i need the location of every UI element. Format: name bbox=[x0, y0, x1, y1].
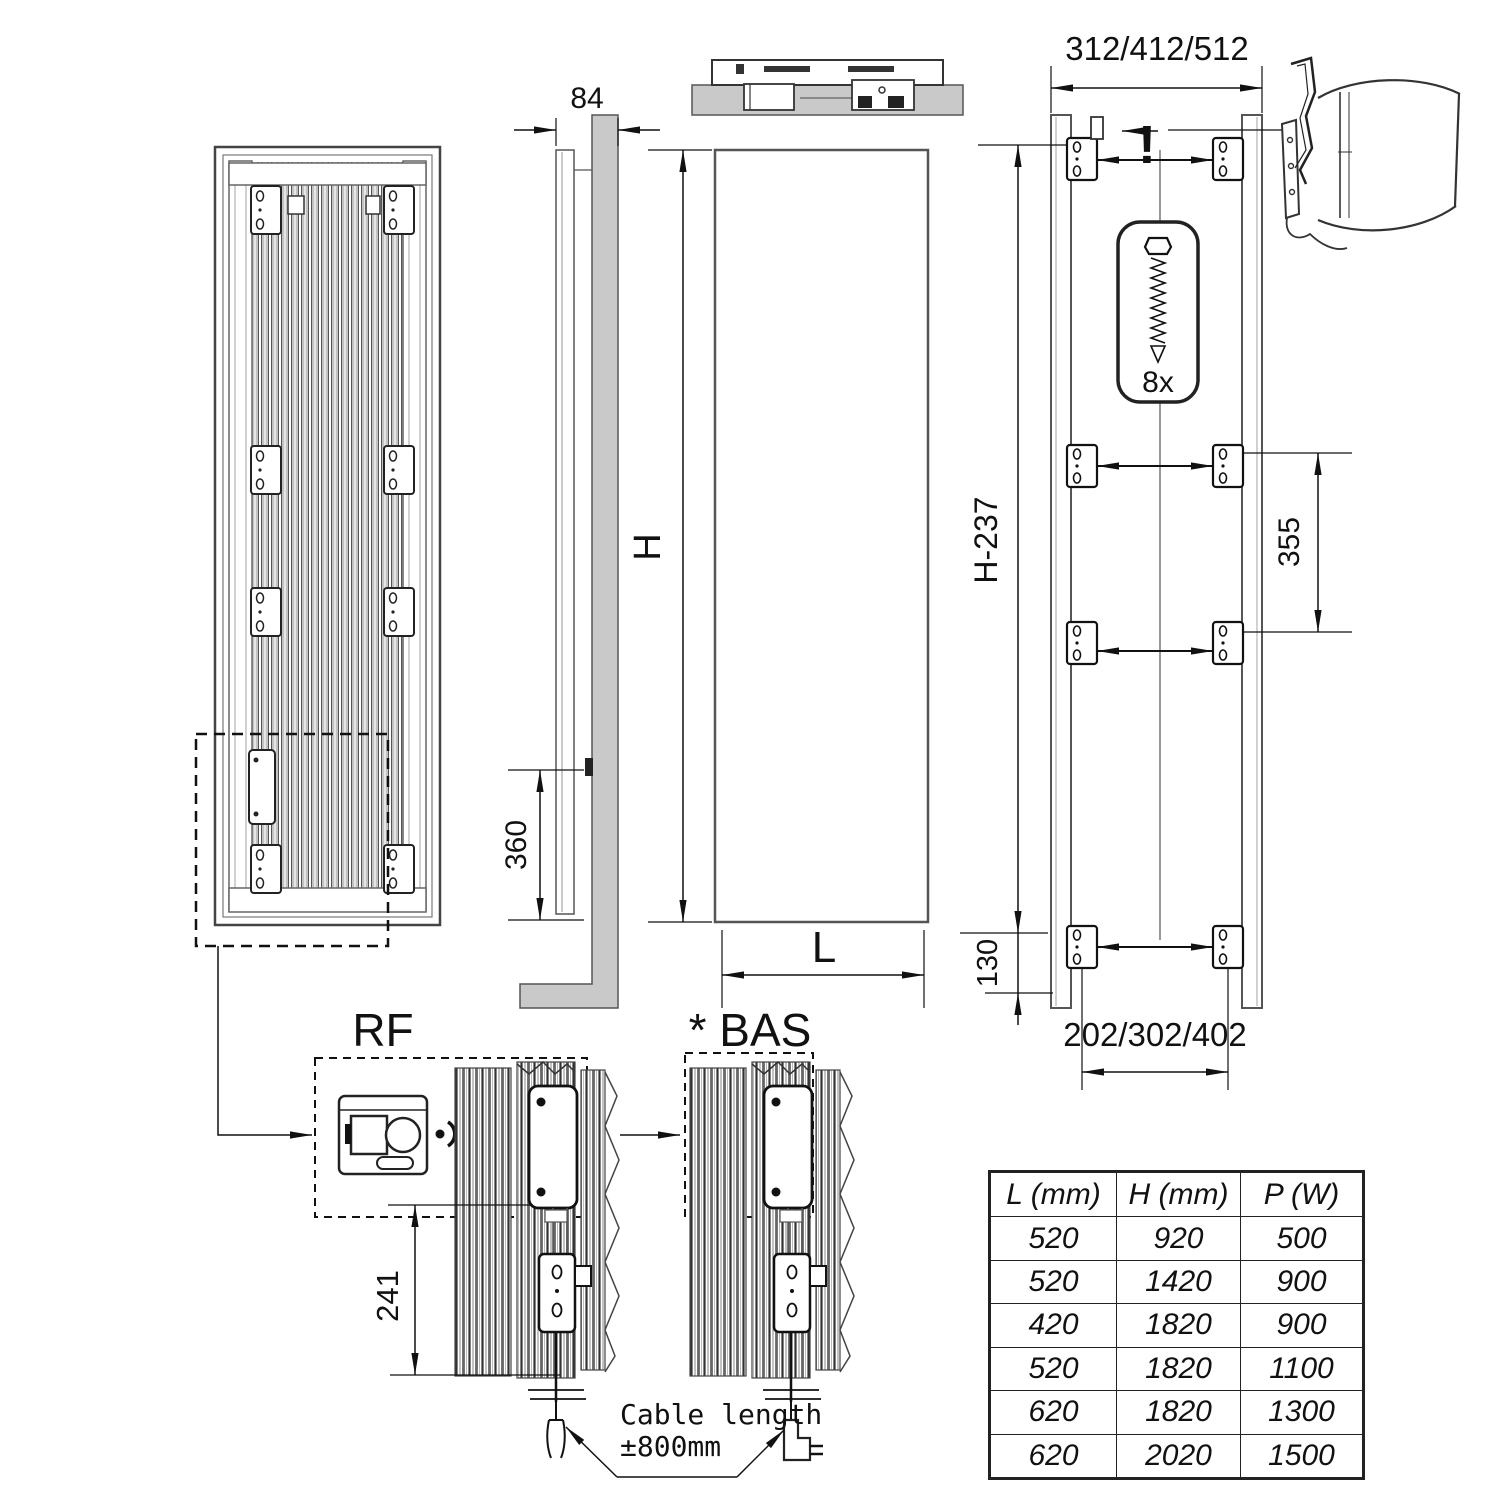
cable-note: Cable length ±800mm bbox=[528, 1390, 823, 1477]
remote-thermostat-icon bbox=[339, 1096, 427, 1174]
dim-bracket-gap-label: 355 bbox=[1273, 517, 1306, 567]
rear-mounting-view: ! 312/412/512 H-237 130 355 bbox=[960, 30, 1460, 1090]
wall-bracket-3d-sketch bbox=[1282, 58, 1460, 249]
panel-outline-view: H L bbox=[627, 150, 928, 1008]
dim-width-label: L bbox=[812, 923, 836, 972]
warning-mark: ! bbox=[1138, 115, 1156, 175]
dim-top-span: 312/412/512 bbox=[1051, 30, 1262, 113]
front-control-unit bbox=[249, 750, 275, 824]
dim-bottom-offset: 130 bbox=[960, 933, 1053, 1025]
table-row: 620 2020 1500 bbox=[991, 1434, 1362, 1477]
rf-label: RF bbox=[352, 1004, 413, 1056]
dim-control-height-label: 241 bbox=[370, 1270, 405, 1322]
front-view bbox=[196, 147, 440, 1135]
spec-table-header-row: L (mm) H (mm) P (W) bbox=[991, 1173, 1362, 1216]
dim-bottom-span-label: 202/302/402 bbox=[1063, 1016, 1247, 1053]
dim-rear-height-label: H-237 bbox=[968, 496, 1004, 583]
top-view bbox=[692, 60, 963, 115]
bas-label: * BAS bbox=[689, 1004, 812, 1056]
col-header-length: L (mm) bbox=[991, 1173, 1116, 1216]
table-row: 620 1820 1300 bbox=[991, 1390, 1362, 1433]
bas-cross-section bbox=[690, 1062, 854, 1402]
col-header-power: P (W) bbox=[1240, 1173, 1362, 1216]
dim-depth: 84 bbox=[514, 82, 660, 146]
spec-table: L (mm) H (mm) P (W) 520 920 500 520 1420… bbox=[988, 1170, 1365, 1480]
screw-count-label: 8x bbox=[1142, 366, 1174, 399]
dim-lower-mount-label: 360 bbox=[500, 820, 533, 870]
dim-height: H bbox=[627, 150, 712, 922]
col-header-height: H (mm) bbox=[1116, 1173, 1240, 1216]
dim-bottom-span: 202/302/402 bbox=[1063, 968, 1247, 1090]
table-row: 520 1420 900 bbox=[991, 1260, 1362, 1303]
table-row: 420 1820 900 bbox=[991, 1303, 1362, 1346]
screw-kit: 8x bbox=[1118, 222, 1198, 402]
table-row: 520 1820 1100 bbox=[991, 1347, 1362, 1390]
bare-wire-icon bbox=[547, 1402, 564, 1458]
table-row: 520 920 500 bbox=[991, 1216, 1362, 1259]
dim-bottom-offset-label: 130 bbox=[972, 939, 1004, 987]
bas-detail: * BAS bbox=[685, 1004, 854, 1402]
dim-top-span-label: 312/412/512 bbox=[1065, 30, 1249, 67]
rf-detail: RF 241 bbox=[315, 1004, 680, 1402]
rf-cross-section bbox=[455, 1062, 619, 1402]
dim-height-label: H bbox=[627, 533, 669, 560]
cable-note-line2: ±800mm bbox=[620, 1430, 721, 1463]
cable-note-line1: Cable length bbox=[620, 1398, 822, 1431]
radiator-installation-diagram: 84 360 H bbox=[0, 0, 1500, 1500]
dim-width: L bbox=[722, 923, 924, 1008]
dim-depth-label: 84 bbox=[570, 82, 603, 115]
